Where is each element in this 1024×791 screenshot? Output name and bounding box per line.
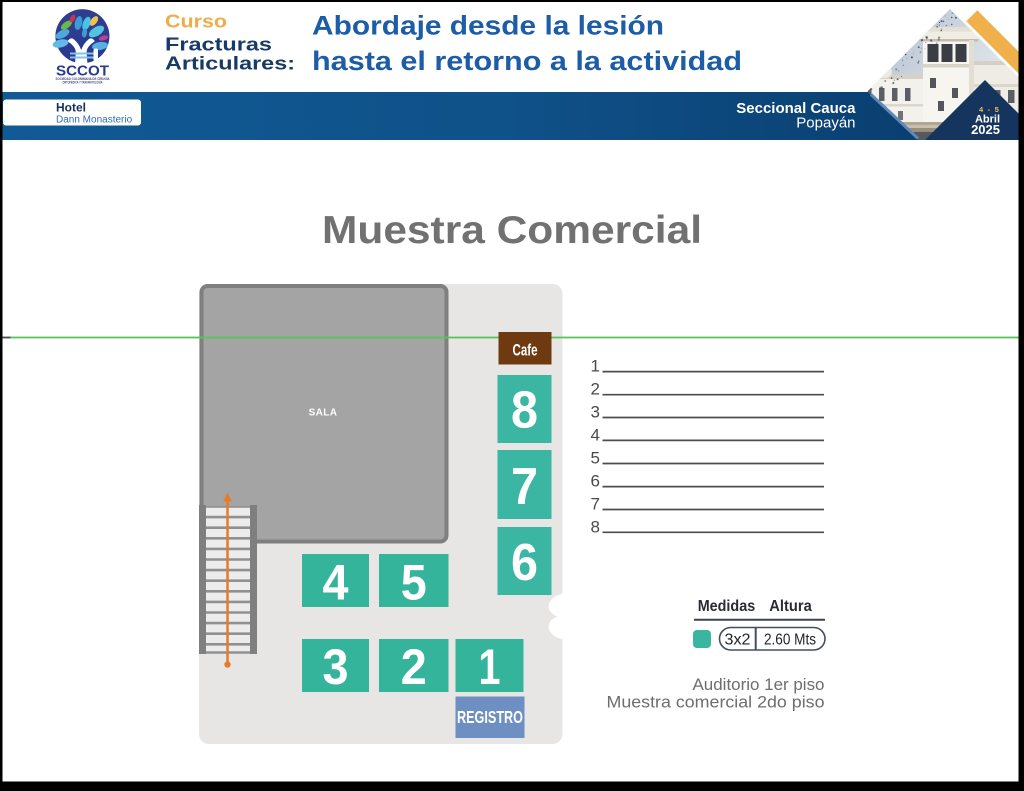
svg-text:3x2: 3x2 [725, 632, 751, 649]
svg-text:1: 1 [591, 357, 600, 376]
svg-text:5: 5 [401, 554, 427, 610]
svg-text:Hotel: Hotel [56, 101, 86, 115]
svg-text:Abordaje desde la lesión: Abordaje desde la lesión [312, 11, 664, 41]
svg-text:7: 7 [511, 458, 538, 516]
svg-text:2.60 Mts: 2.60 Mts [764, 632, 816, 649]
svg-text:2: 2 [401, 639, 427, 695]
svg-text:3: 3 [323, 639, 349, 695]
svg-text:5: 5 [591, 449, 600, 468]
svg-text:SALA: SALA [309, 408, 338, 419]
svg-text:6: 6 [511, 534, 538, 592]
svg-text:7: 7 [591, 495, 600, 514]
svg-text:Muestra Comercial: Muestra Comercial [322, 209, 702, 252]
svg-text:8: 8 [511, 382, 538, 440]
svg-text:2025: 2025 [971, 122, 1000, 137]
svg-text:2: 2 [591, 380, 600, 399]
svg-text:Muestra comercial 2do piso: Muestra comercial 2do piso [607, 694, 825, 712]
svg-text:Curso: Curso [165, 12, 227, 32]
svg-text:6: 6 [591, 472, 600, 491]
svg-text:Dann Monasterio: Dann Monasterio [56, 115, 133, 126]
svg-text:hasta el retorno a la activida: hasta el retorno a la actividad [312, 46, 742, 76]
svg-text:Auditorio 1er piso: Auditorio 1er piso [693, 676, 825, 694]
svg-text:Altura: Altura [769, 598, 812, 615]
svg-text:ORTOPÉDICA Y TRAUMATOLOGÍA: ORTOPÉDICA Y TRAUMATOLOGÍA [63, 80, 103, 85]
svg-text:Popayán: Popayán [796, 115, 855, 132]
svg-text:REGISTRO: REGISTRO [457, 707, 523, 727]
svg-text:4: 4 [323, 554, 349, 610]
svg-text:1: 1 [479, 639, 501, 695]
svg-text:8: 8 [591, 517, 600, 536]
svg-text:Articulares:: Articulares: [165, 53, 295, 74]
svg-text:Medidas: Medidas [698, 598, 756, 615]
svg-text:Cafe: Cafe [513, 341, 538, 360]
svg-text:4: 4 [591, 425, 600, 444]
svg-text:3: 3 [591, 403, 600, 422]
svg-text:Fracturas: Fracturas [165, 34, 272, 55]
